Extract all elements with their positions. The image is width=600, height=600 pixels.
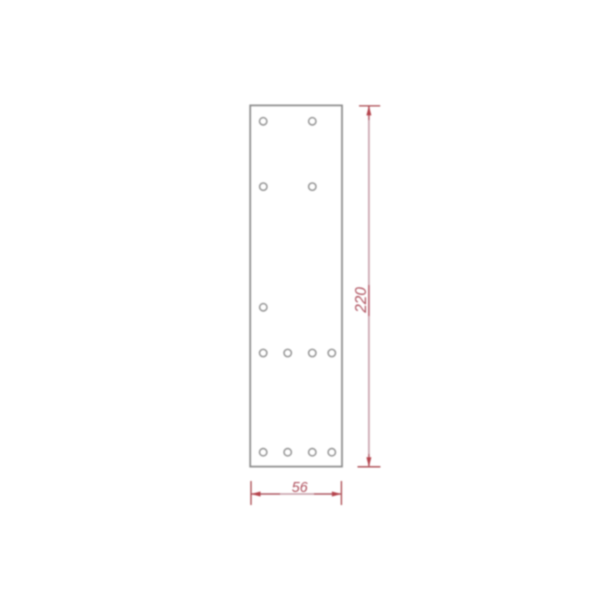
svg-text:220: 220 xyxy=(353,287,370,314)
svg-text:56: 56 xyxy=(292,480,308,496)
